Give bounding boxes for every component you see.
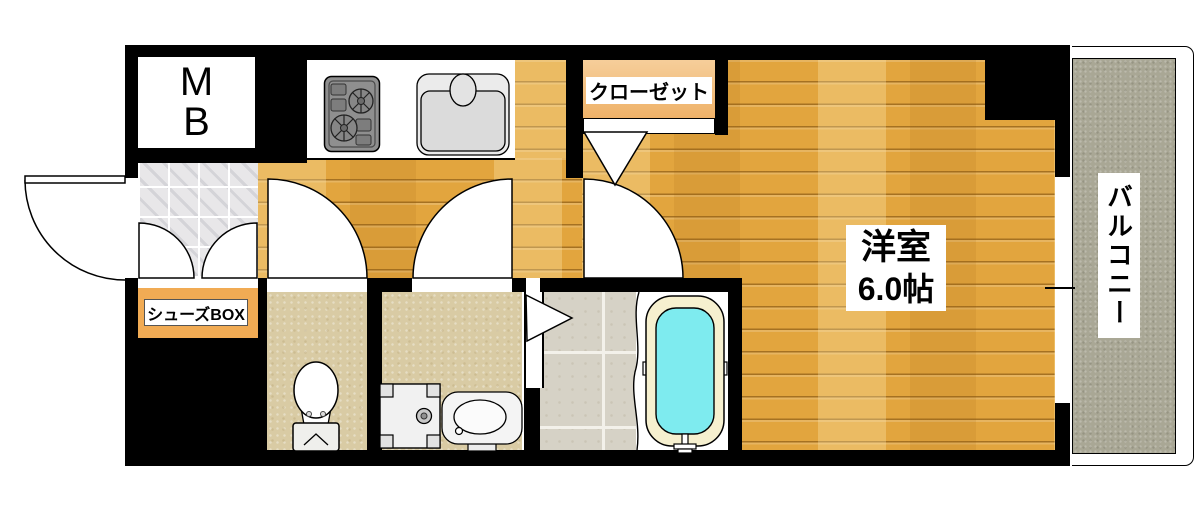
bath-folding-door-icon [524, 292, 576, 344]
floor-plan: MB クローゼット シューズBOX 洋室 6.0帖 バルコニー [0, 0, 1200, 515]
western-room-name: 洋室 [861, 227, 931, 269]
room-door-swing-icon [583, 178, 684, 279]
wall-closet-left [566, 45, 583, 178]
wall-left-lower [125, 278, 138, 465]
stove-icon [323, 75, 381, 153]
entrance-threshold [138, 278, 258, 288]
wall-mb-bottom [125, 148, 307, 163]
toilet-doorway [267, 278, 367, 292]
washroom-doorway [412, 278, 512, 292]
meter-box-label: MB [138, 57, 255, 148]
wall-closet-right [715, 45, 728, 135]
toilet-door-swing-icon [267, 178, 368, 279]
washroom-door-swing-icon [412, 178, 513, 279]
washing-machine-pan-icon [379, 383, 442, 450]
wall-hall-jamb-right [512, 278, 524, 292]
wash-basin-icon [440, 388, 524, 452]
shoes-box-door-swings-icon [138, 219, 258, 279]
wall-bathdoor-lower [524, 388, 540, 450]
window-opening [1055, 177, 1070, 403]
wall-bath-right [728, 278, 742, 466]
sink-icon [415, 69, 512, 158]
kitchen-side-floor [515, 60, 568, 158]
bath-tile-edge-line [628, 292, 644, 450]
entrance-door-swing-icon [22, 174, 128, 286]
toilet-icon [284, 352, 348, 453]
window-center-tick [1045, 287, 1075, 289]
closet-folding-door-icon [583, 131, 649, 189]
wall-right-upper [1055, 45, 1070, 177]
wall-top [125, 45, 1070, 60]
balcony-label: バルコニー [1098, 173, 1140, 338]
wall-bath-top [540, 278, 742, 292]
wall-hall-pier [367, 278, 412, 292]
western-room-size: 6.0帖 [858, 269, 935, 309]
closet-label: クローゼット [586, 77, 712, 104]
wall-mass-bottomleft [138, 338, 267, 465]
bathtub-icon [643, 294, 729, 454]
wall-pillar-topright [985, 45, 1057, 120]
meter-box-text: MB [178, 63, 216, 141]
shoes-box-label: シューズBOX [144, 299, 248, 326]
western-room-label: 洋室 6.0帖 [846, 225, 946, 311]
